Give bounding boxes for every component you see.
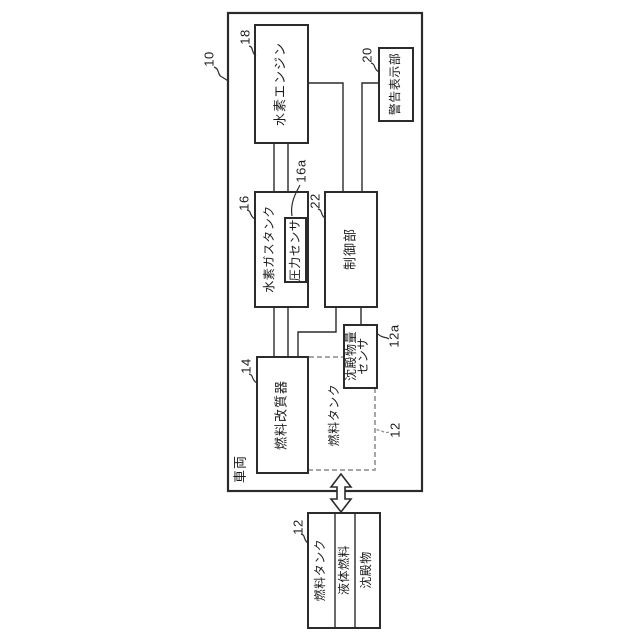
ref-14: 14 [238, 358, 253, 373]
fuel-tank-outline-label: 燃料タンク [326, 384, 341, 447]
warning-display-label: 警告表示部 [387, 53, 402, 116]
ref-10: 10 [201, 51, 216, 66]
leader-10 [214, 67, 228, 81]
ref-16a: 16a [293, 159, 308, 182]
fuel-tank-liquid-label: 液体燃料 [336, 545, 351, 595]
fuel-tank-sediment-label: 沈殿物 [358, 551, 373, 589]
ref-16: 16 [236, 195, 251, 210]
hydrogen-gas-tank-label: 水素ガスタンク [262, 205, 276, 293]
ref-22: 22 [307, 193, 322, 208]
pressure-sensor-label: 圧力センサ [288, 219, 302, 282]
ref-12-outline: 12 [387, 422, 402, 437]
fuel-reformer-label: 燃料改質器 [273, 380, 288, 450]
ref-20: 20 [359, 47, 374, 62]
hydrogen-engine-label: 水素エンジン [272, 42, 287, 126]
ref-12-detail: 12 [290, 519, 305, 534]
controller-label: 制御部 [342, 228, 357, 270]
ref-18: 18 [237, 29, 252, 44]
vehicle-label: 車両 [232, 455, 247, 483]
sediment-sensor-label-line2: センサ [356, 337, 370, 375]
patent-figure: 水素エンジン 警告表示部 水素ガスタンク 圧力センサ 制御部 燃料改質器 沈殿物… [0, 0, 640, 640]
fuel-tank-detail-title: 燃料タンク [312, 539, 327, 602]
block-diagram: 水素エンジン 警告表示部 水素ガスタンク 圧力センサ 制御部 燃料改質器 沈殿物… [0, 0, 640, 640]
ref-12a: 12a [386, 324, 401, 347]
